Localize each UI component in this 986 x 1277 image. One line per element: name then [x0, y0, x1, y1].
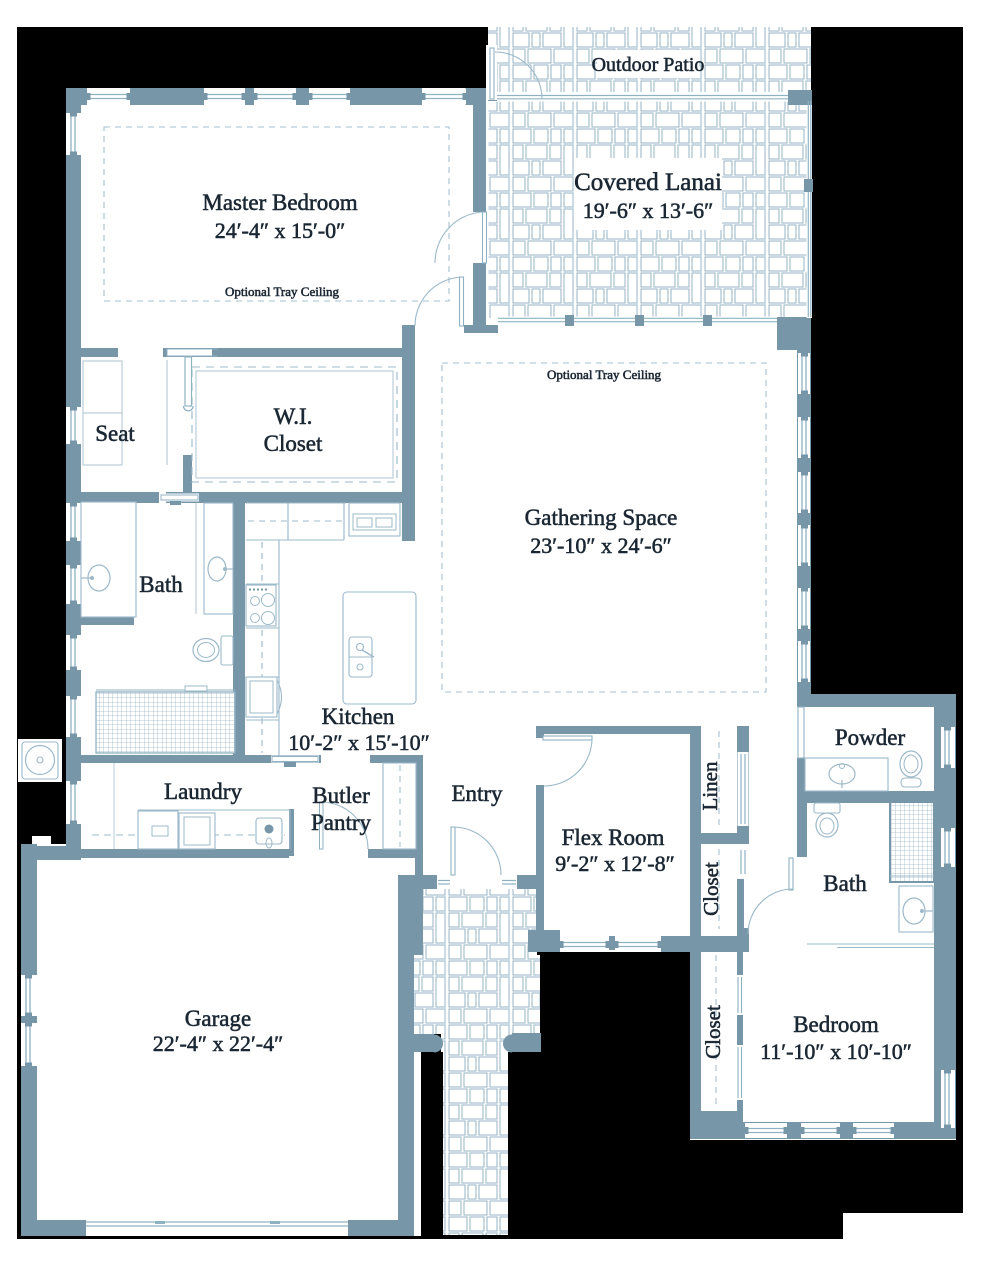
svg-text:22′-4″ x 22′-4″: 22′-4″ x 22′-4″: [153, 1031, 284, 1056]
svg-text:9′-2″ x 12′-8″: 9′-2″ x 12′-8″: [555, 851, 675, 876]
svg-text:Bedroom: Bedroom: [793, 1012, 879, 1037]
svg-text:Entry: Entry: [451, 781, 503, 806]
svg-text:Closet: Closet: [699, 862, 723, 916]
svg-text:23′-10″ x 24′-6″: 23′-10″ x 24′-6″: [530, 533, 672, 558]
svg-text:W.I.: W.I.: [274, 404, 313, 429]
svg-text:19′-6″ x 13′-6″: 19′-6″ x 13′-6″: [583, 198, 714, 223]
svg-text:Garage: Garage: [185, 1006, 251, 1031]
svg-text:11′-10″ x 10′-10″: 11′-10″ x 10′-10″: [760, 1039, 912, 1064]
svg-text:Master Bedroom: Master Bedroom: [202, 190, 357, 215]
svg-text:Optional Tray Ceiling: Optional Tray Ceiling: [547, 367, 662, 382]
svg-text:Butler: Butler: [312, 783, 370, 808]
svg-text:Linen: Linen: [698, 761, 722, 810]
svg-text:Pantry: Pantry: [311, 810, 372, 835]
svg-text:Closet: Closet: [264, 431, 323, 456]
svg-text:Seat: Seat: [95, 421, 135, 446]
svg-text:24′-4″ x 15′-0″: 24′-4″ x 15′-0″: [215, 218, 346, 243]
svg-text:Flex Room: Flex Room: [562, 825, 665, 850]
svg-text:Bath: Bath: [139, 572, 183, 597]
svg-text:10′-2″ x 15′-10″: 10′-2″ x 15′-10″: [288, 730, 430, 755]
svg-text:Covered Lanai: Covered Lanai: [574, 169, 722, 196]
svg-text:Kitchen: Kitchen: [322, 704, 395, 729]
svg-text:Outdoor Patio: Outdoor Patio: [592, 54, 705, 76]
svg-text:Gathering Space: Gathering Space: [525, 505, 678, 530]
svg-text:Bath: Bath: [823, 871, 867, 896]
svg-text:Powder: Powder: [835, 725, 906, 750]
svg-text:Closet: Closet: [701, 1005, 725, 1059]
svg-text:Optional Tray Ceiling: Optional Tray Ceiling: [225, 284, 340, 299]
svg-text:Laundry: Laundry: [164, 779, 242, 804]
